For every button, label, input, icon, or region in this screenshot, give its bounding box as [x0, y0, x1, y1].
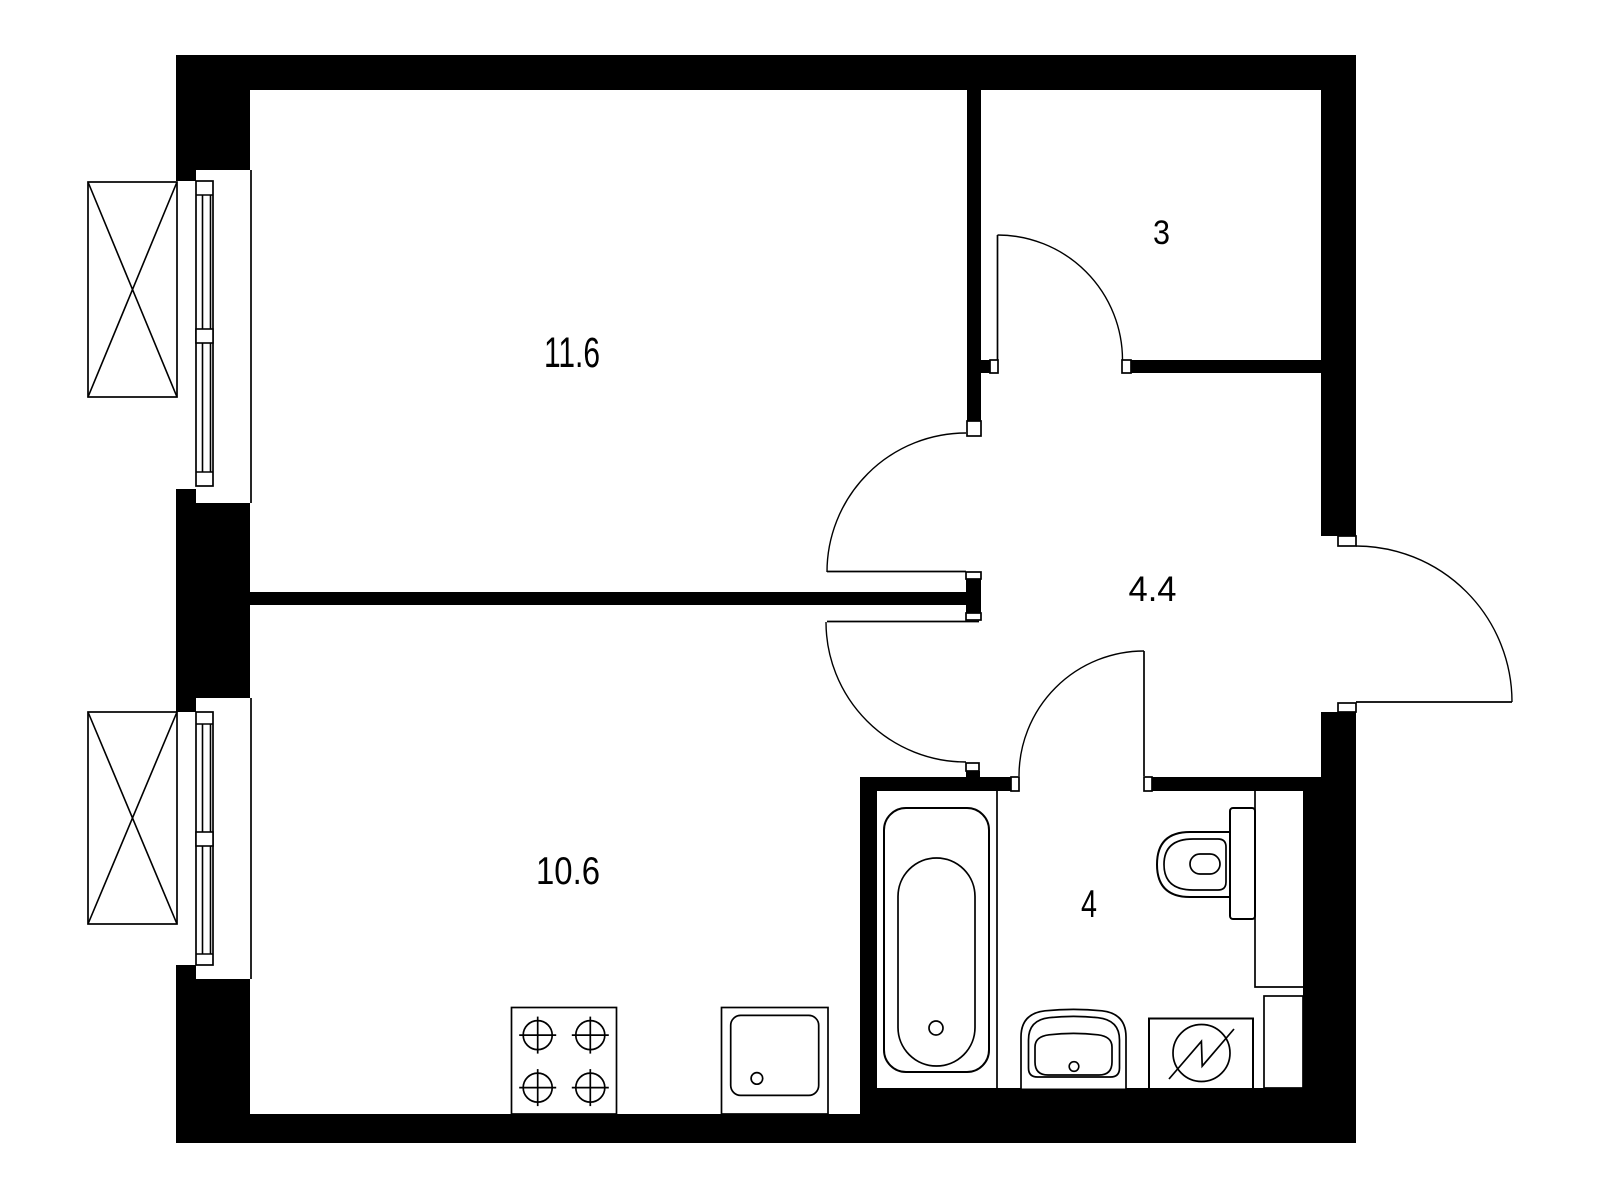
svg-text:10.6: 10.6: [536, 850, 600, 893]
svg-text:4.4: 4.4: [1129, 570, 1177, 609]
svg-text:3: 3: [1153, 214, 1170, 252]
svg-text:4: 4: [1081, 883, 1097, 926]
svg-text:11.6: 11.6: [544, 329, 600, 377]
